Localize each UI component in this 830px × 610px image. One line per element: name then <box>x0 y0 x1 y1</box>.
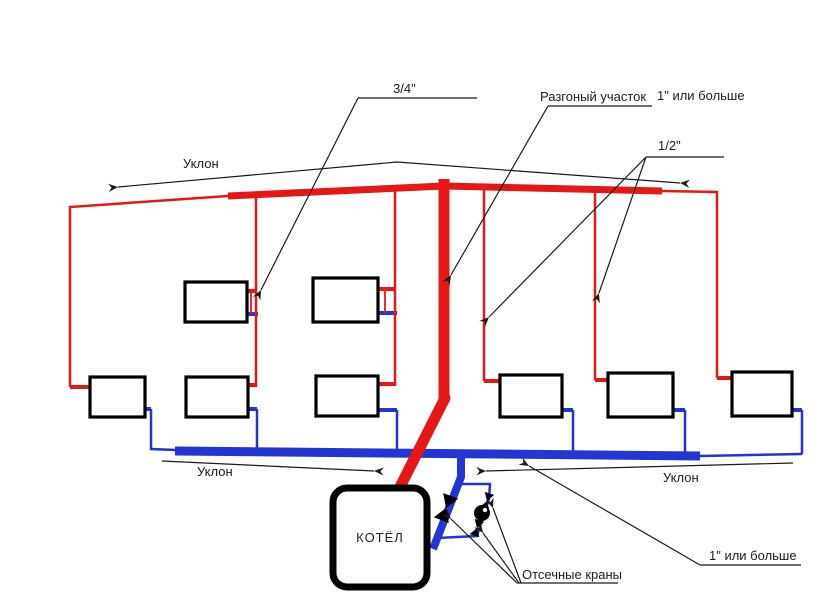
radiator <box>313 278 378 322</box>
label-three-quarter: 3/4" <box>393 81 416 96</box>
slope-arrow-bottom-right <box>486 463 793 471</box>
label-one-inch-top: 1" или больше <box>657 88 745 103</box>
valve-icon <box>434 493 458 523</box>
boiler-label: КОТЁЛ <box>356 530 404 545</box>
radiator <box>90 377 145 417</box>
label-shutoff-valves: Отсечные краны <box>522 567 622 582</box>
radiator <box>185 282 247 322</box>
valve-icon <box>470 519 484 537</box>
label-one-inch-bottom: 1" или больше <box>709 548 797 563</box>
heating-diagram: КОТЁЛ <box>0 0 830 610</box>
label-slope-bottom-right: Уклон <box>663 470 699 485</box>
radiator <box>186 377 248 417</box>
text-labels: 3/4" Разгоный участок 1" или больше 1/2"… <box>183 81 797 582</box>
callout-half-inch <box>489 157 724 317</box>
label-accel-section: Разгоный участок <box>540 89 646 104</box>
radiator <box>608 373 673 417</box>
label-slope-bottom-left: Уклон <box>197 464 233 479</box>
diagram-canvas: КОТЁЛ <box>0 0 830 610</box>
label-half-inch: 1/2" <box>658 138 681 153</box>
main-riser <box>399 179 445 489</box>
pump-icon <box>474 505 490 521</box>
radiator <box>316 376 378 416</box>
supply-pipe <box>70 179 732 489</box>
label-slope-top: Уклон <box>183 156 219 171</box>
radiator <box>732 372 792 416</box>
slope-arrow-bottom-left <box>162 461 374 471</box>
boiler: КОТЁЛ <box>333 488 427 587</box>
annotations <box>118 98 801 583</box>
radiator <box>500 375 562 417</box>
return-pipe <box>145 313 802 549</box>
